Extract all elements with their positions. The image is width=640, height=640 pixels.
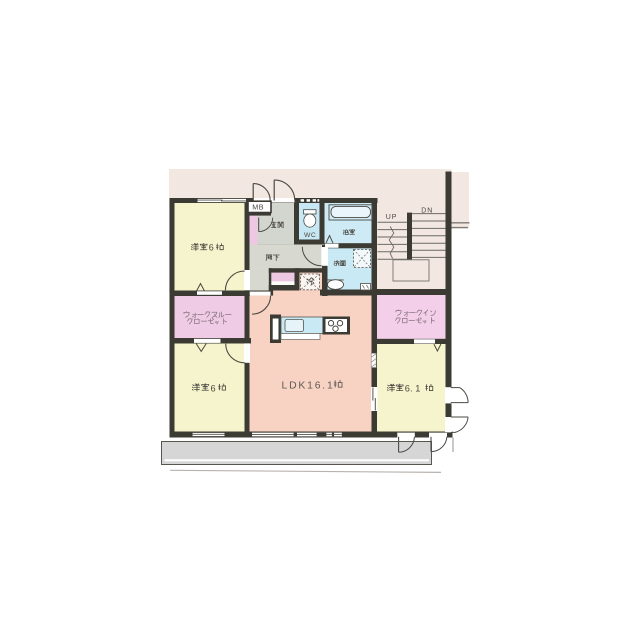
svg-text:6: 6: [211, 383, 216, 393]
svg-text:ォ: ォ: [402, 309, 410, 318]
svg-text:6: 6: [209, 243, 214, 253]
svg-text:LDK16.1: LDK16.1: [282, 381, 335, 392]
svg-text:MB: MB: [252, 203, 264, 212]
svg-text:UP: UP: [386, 214, 398, 221]
svg-text:ォ: ォ: [190, 311, 198, 320]
svg-text:DN: DN: [421, 207, 433, 214]
svg-text:WC: WC: [304, 232, 316, 239]
svg-text:6. 1: 6. 1: [405, 384, 421, 394]
